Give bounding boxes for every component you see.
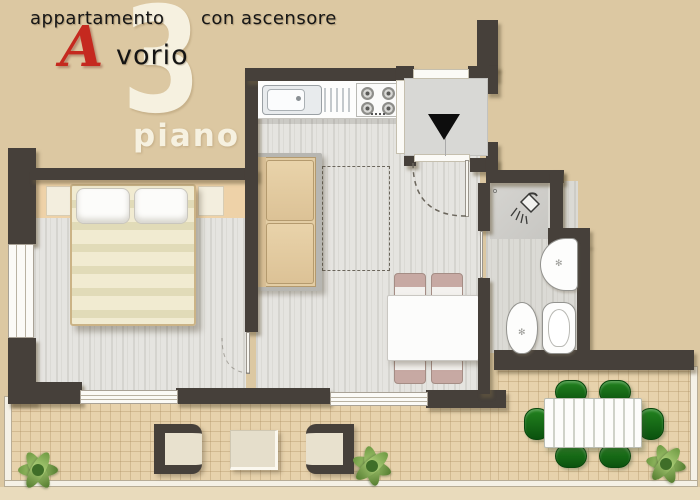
bedroom-door-leaf bbox=[246, 332, 250, 374]
ground-strip bbox=[0, 487, 700, 500]
bathroom-door-leaf bbox=[480, 231, 483, 278]
sink-drainboard bbox=[324, 88, 354, 112]
plant-icon bbox=[18, 450, 58, 490]
wall bbox=[550, 170, 563, 230]
drain-icon: ✻ bbox=[555, 260, 563, 269]
dining-chair bbox=[431, 358, 463, 384]
terrace-railing-left bbox=[4, 396, 12, 484]
bidet: ✻ bbox=[506, 302, 538, 354]
elevator-door-bottom bbox=[414, 154, 470, 162]
kitchen-sink bbox=[262, 85, 322, 115]
elevator-door-left bbox=[396, 80, 405, 154]
shower-head-icon bbox=[507, 190, 541, 226]
title-right: con ascensore bbox=[201, 8, 337, 29]
plant-icon bbox=[352, 446, 392, 486]
brand-initial: A bbox=[60, 14, 103, 80]
wardrobe-dashed-divider bbox=[322, 166, 323, 271]
terrace-railing-bottom bbox=[4, 480, 698, 487]
entry-door-leaf bbox=[465, 160, 469, 217]
terrace-floor-left bbox=[10, 400, 580, 482]
hob-knobs-icon bbox=[371, 113, 387, 115]
window-bedroom bbox=[8, 244, 34, 338]
faucet-icon bbox=[296, 96, 301, 101]
brand-name: vorio bbox=[116, 40, 189, 71]
drain-icon: ✻ bbox=[518, 329, 526, 338]
lounge-side-table bbox=[230, 430, 278, 470]
wall bbox=[176, 388, 330, 404]
wall bbox=[577, 244, 590, 354]
window-terrace-door-right bbox=[330, 392, 428, 406]
dining-table bbox=[387, 295, 479, 361]
nightstand-right bbox=[198, 186, 224, 216]
elevator-landing-top bbox=[413, 69, 469, 79]
pillow-right bbox=[134, 188, 188, 224]
gas-hob bbox=[356, 83, 400, 117]
sofa-cushion-bottom bbox=[266, 223, 314, 284]
lounge-armchair-left bbox=[154, 424, 202, 474]
window-terrace-door-left bbox=[80, 390, 178, 404]
pillow-left bbox=[76, 188, 130, 224]
shower-drain-icon bbox=[493, 189, 497, 193]
wall bbox=[8, 382, 82, 404]
wall bbox=[478, 183, 490, 231]
plant-icon bbox=[646, 444, 686, 484]
dining-chair bbox=[394, 358, 426, 384]
wall-spine bbox=[245, 68, 258, 332]
elevator-down-triangle-icon bbox=[428, 114, 460, 140]
toilet bbox=[542, 302, 576, 354]
wall bbox=[8, 148, 36, 244]
burner-icon bbox=[382, 87, 395, 100]
sofa-cushion-top bbox=[266, 160, 314, 221]
outdoor-table bbox=[544, 398, 642, 448]
floorplan-image: 3 piano appartamento con ascensore A vor… bbox=[0, 0, 700, 500]
terrace-railing-right bbox=[690, 366, 698, 484]
wall bbox=[477, 20, 498, 70]
wall-kitchen-top bbox=[245, 68, 407, 81]
burner-icon bbox=[361, 87, 374, 100]
lounge-armchair-right bbox=[306, 424, 354, 474]
counter-shadow bbox=[258, 119, 406, 124]
wall bbox=[30, 168, 258, 180]
wall bbox=[426, 390, 506, 408]
wall bbox=[478, 278, 490, 394]
floor-label: piano bbox=[133, 118, 240, 154]
nightstand-left bbox=[46, 186, 72, 216]
